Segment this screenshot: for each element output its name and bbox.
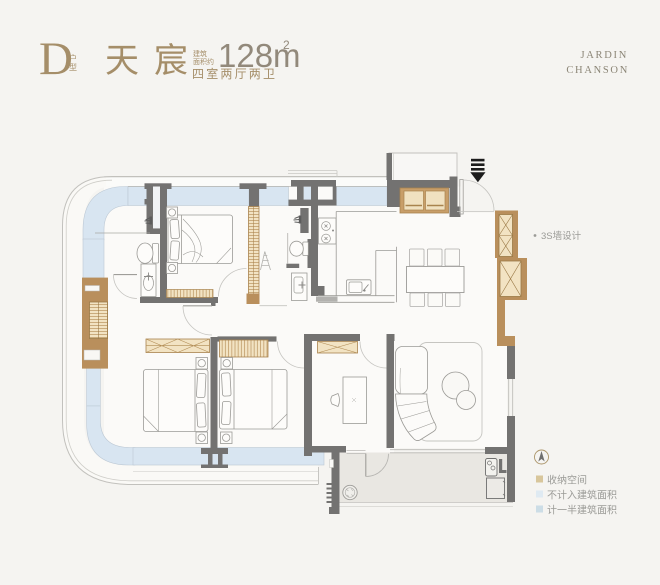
svg-text:CHANSON: CHANSON <box>566 65 629 76</box>
svg-text:型: 型 <box>69 63 77 72</box>
svg-text:JARDIN: JARDIN <box>580 50 628 61</box>
svg-text:3S墙设计: 3S墙设计 <box>541 230 582 242</box>
svg-text:不计入建筑面积: 不计入建筑面积 <box>547 489 617 502</box>
svg-text:计一半建筑面积: 计一半建筑面积 <box>547 504 617 517</box>
svg-text:建筑: 建筑 <box>193 49 207 58</box>
svg-text:天宸: 天宸 <box>105 42 203 80</box>
svg-text:四室两厅两卫: 四室两厅两卫 <box>192 66 277 81</box>
svg-text:面积约: 面积约 <box>193 57 214 66</box>
svg-text:收纳空间: 收纳空间 <box>547 474 587 487</box>
svg-text:D: D <box>39 33 73 85</box>
svg-text:户: 户 <box>69 53 77 63</box>
svg-text:2: 2 <box>283 38 290 52</box>
